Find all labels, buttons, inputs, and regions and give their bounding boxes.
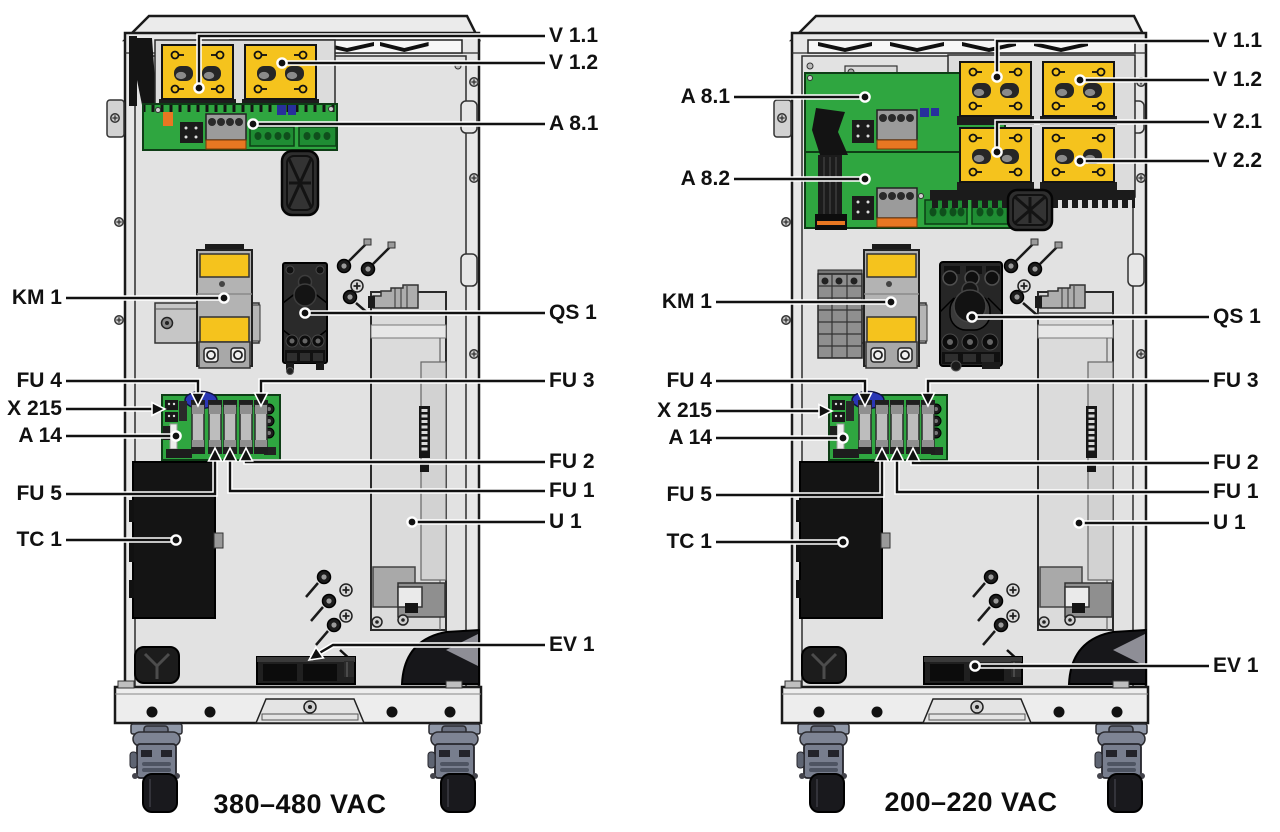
callout-right-v2-1: V 2.1 [1213, 110, 1262, 134]
x-handle [282, 151, 318, 215]
callout-right-fu3: FU 3 [1213, 369, 1259, 393]
terminal-blocks [818, 270, 862, 358]
callout-left-fu3: FU 3 [549, 369, 595, 393]
callout-right-fu5: FU 5 [650, 483, 712, 507]
callout-right-u1: U 1 [1213, 511, 1246, 535]
callout-right-fu1: FU 1 [1213, 480, 1259, 504]
callout-left-fu5: FU 5 [2, 482, 62, 506]
diagram-canvas: V 1.1 V 1.2 A 8.1 QS 1 FU 3 FU 2 FU 1 U … [0, 0, 1280, 832]
callout-left-a8-1: A 8.1 [549, 112, 598, 136]
callout-left-x215: X 215 [2, 397, 62, 421]
left-cabinet [107, 16, 481, 812]
callout-left-fu2: FU 2 [549, 450, 595, 474]
caption-right-voltage: 200–220 VAC [836, 787, 1106, 818]
callout-left-a14: A 14 [2, 424, 62, 448]
x-handle [1008, 190, 1052, 230]
callout-right-v1-1: V 1.1 [1213, 29, 1262, 53]
callout-right-v1-2: V 1.2 [1213, 68, 1262, 92]
caption-left-voltage: 380–480 VAC [165, 789, 435, 820]
pcb-a8-1 [143, 104, 337, 150]
callout-left-v1-1: V 1.1 [549, 24, 598, 48]
callout-right-x215: X 215 [650, 399, 712, 423]
callout-left-tc1: TC 1 [2, 528, 62, 552]
callout-left-qs1: QS 1 [549, 301, 597, 325]
callout-right-qs1: QS 1 [1213, 305, 1261, 329]
callout-left-v1-2: V 1.2 [549, 51, 598, 75]
right-cabinet [774, 16, 1148, 812]
callout-left-fu1: FU 1 [549, 479, 595, 503]
callout-right-fu2: FU 2 [1213, 451, 1259, 475]
module-v2-2 [1043, 128, 1114, 182]
callout-left-km1: KM 1 [2, 286, 62, 310]
callout-left-ev1: EV 1 [549, 633, 595, 657]
callout-right-km1: KM 1 [650, 290, 712, 314]
module-v1-2 [1043, 62, 1114, 116]
callout-right-v2-2: V 2.2 [1213, 149, 1262, 173]
callout-right-fu4: FU 4 [650, 369, 712, 393]
callout-right-a8-2: A 8.2 [668, 167, 730, 191]
module-v1-2 [245, 45, 316, 99]
callout-right-a14: A 14 [650, 426, 712, 450]
callout-left-fu4: FU 4 [2, 369, 62, 393]
callout-right-a8-1: A 8.1 [668, 85, 730, 109]
callout-right-tc1: TC 1 [650, 530, 712, 554]
callout-left-u1: U 1 [549, 510, 582, 534]
cabinet-drawing [0, 0, 1280, 832]
callout-right-ev1: EV 1 [1213, 654, 1259, 678]
